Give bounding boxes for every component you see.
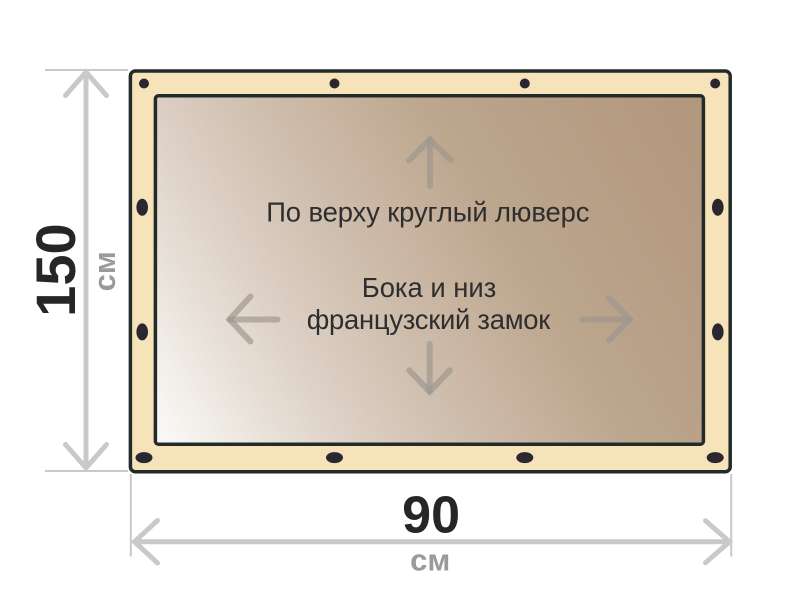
- svg-text:см: см: [87, 251, 122, 291]
- svg-text:По верху круглый люверс: По верху круглый люверс: [266, 197, 589, 228]
- svg-text:французский замок: французский замок: [307, 304, 552, 335]
- svg-text:150: 150: [24, 223, 87, 316]
- svg-text:см: см: [410, 543, 450, 578]
- svg-text:90: 90: [402, 486, 460, 544]
- svg-text:Бока и низ: Бока и низ: [362, 272, 497, 303]
